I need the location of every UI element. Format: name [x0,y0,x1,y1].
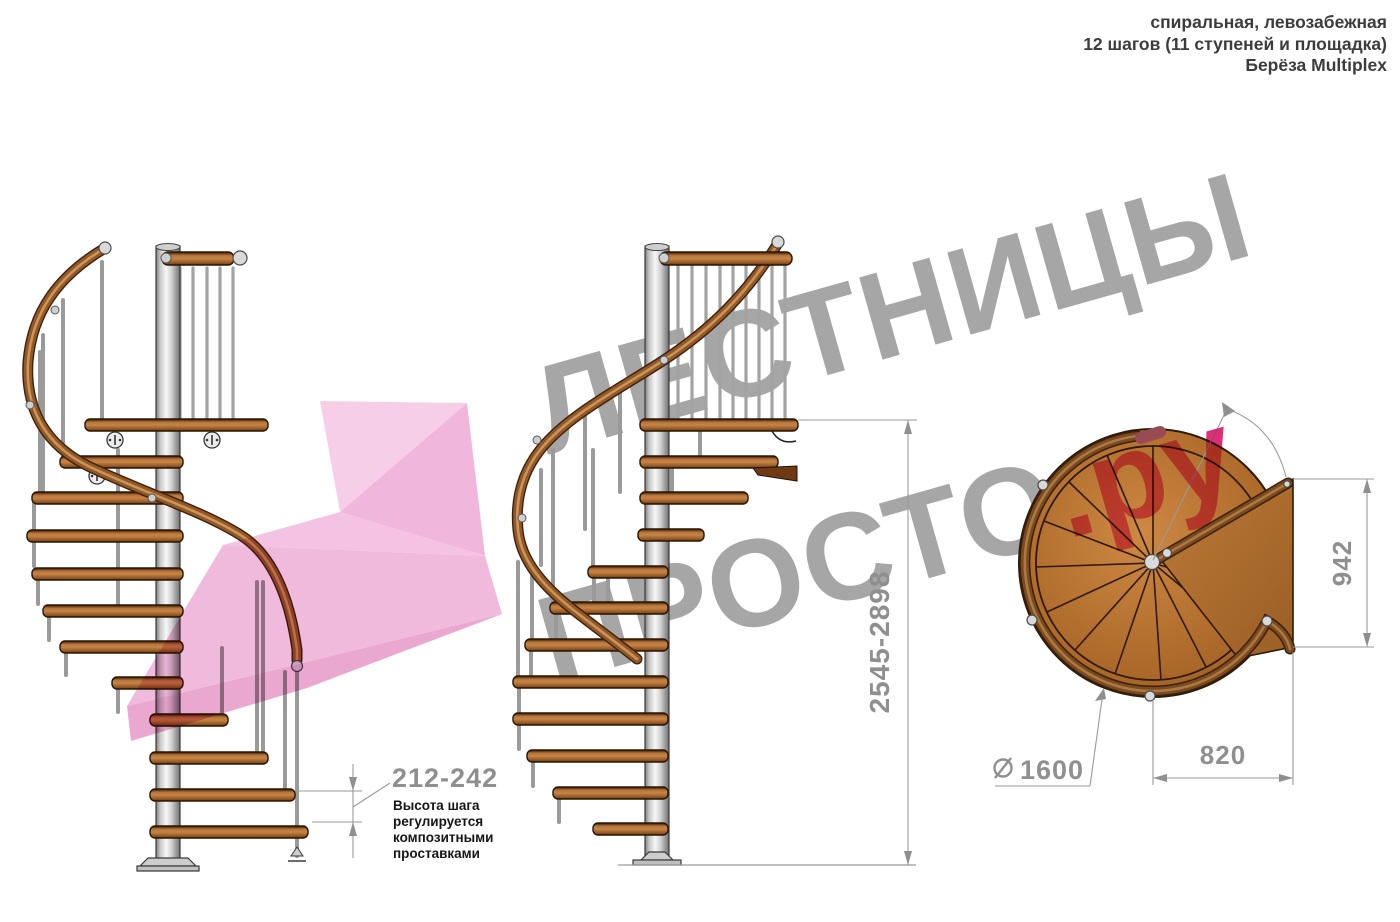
dimension-step-height: 212-242 Высота шага регулируется компози… [298,763,498,861]
center-pole-front [156,246,180,862]
drawing-sheet: ЛЕСТНИЦЫ ПРОСТО.ру [0,0,1400,922]
svg-text:Высота шага: Высота шага [393,798,480,813]
diameter-value: 1600 [1020,755,1084,785]
landing-side-value: 942 [1327,540,1357,586]
landing-platform-side [640,419,798,431]
step-height-value: 212-242 [392,763,498,793]
svg-text:проставками: проставками [393,846,480,861]
title-material: Берёза Multiplex [1083,55,1387,77]
landing-width-value: 820 [1200,740,1246,770]
diameter-icon [995,758,1012,778]
landing-platform-front [85,419,268,431]
pole-base-side [633,852,681,865]
top-guardrail-front [161,251,247,265]
top-guardrail-side [659,252,792,265]
step-height-note: Высота шага регулируется композитными пр… [393,798,493,861]
title-steps: 12 шагов (11 ступеней и площадка) [1083,34,1387,56]
title-block: спиральная, левозабежная 12 шагов (11 ст… [1083,12,1387,77]
dimension-landing-side: 942 [1293,479,1374,647]
svg-text:регулируется: регулируется [393,814,483,829]
dimension-diameter: 1600 [995,688,1107,786]
title-type: спиральная, левозабежная [1083,12,1387,34]
view-front-elevation [26,242,308,871]
svg-text:композитными: композитными [393,830,493,845]
